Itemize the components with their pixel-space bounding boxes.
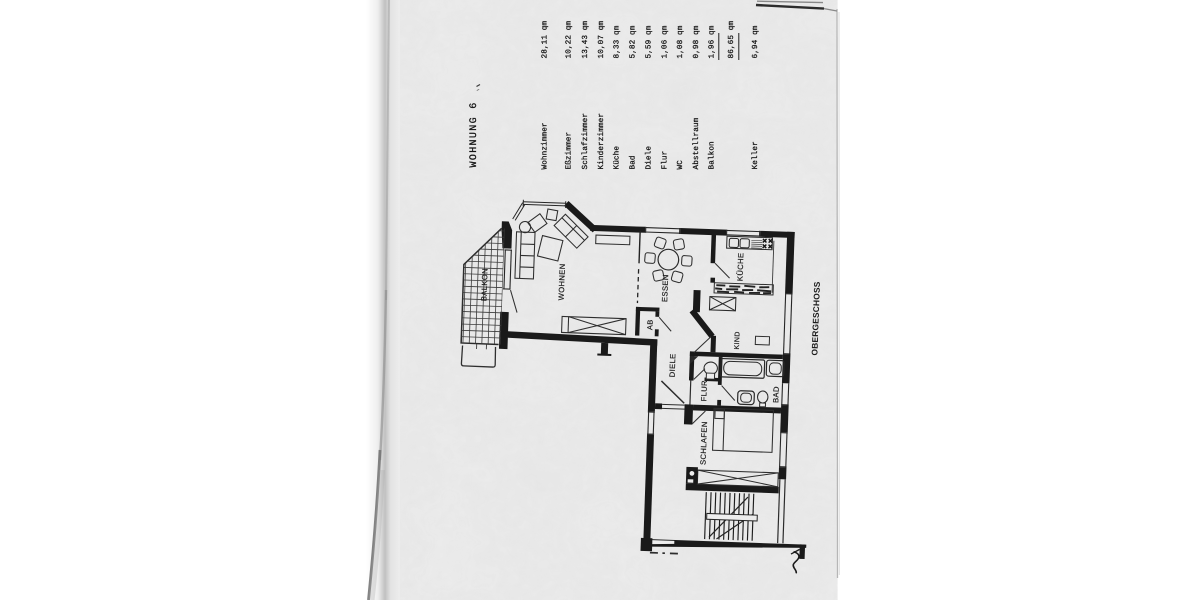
svg-text:Balkon: Balkon (708, 141, 717, 169)
svg-text:BALKON: BALKON (479, 268, 489, 302)
svg-text:5,59 qm: 5,59 qm (645, 25, 654, 58)
svg-text:AB: AB (645, 319, 654, 330)
svg-text:Bad: Bad (628, 155, 637, 169)
svg-text:1,96 qm: 1,96 qm (708, 25, 717, 58)
svg-text:WOHNEN: WOHNEN (557, 263, 567, 300)
svg-text:10,22 qm: 10,22 qm (564, 21, 573, 59)
svg-text:5,82 qm: 5,82 qm (628, 25, 637, 58)
svg-text:Wohnzimmer: Wohnzimmer (540, 122, 549, 169)
svg-text:SCHLAFEN: SCHLAFEN (699, 421, 710, 465)
svg-text:Flur: Flur (660, 151, 669, 170)
svg-text:WOHNUNG 6: WOHNUNG 6 (469, 101, 480, 167)
svg-text:BAD: BAD (771, 386, 781, 403)
svg-text:Eßzimmer: Eßzimmer (564, 132, 573, 170)
svg-text:Diele: Diele (645, 146, 654, 170)
svg-text:8,33 qm: 8,33 qm (613, 25, 622, 58)
svg-text:KÜCHE: KÜCHE (735, 252, 745, 281)
svg-text:WC: WC (676, 160, 685, 170)
svg-text:1,06 qm: 1,06 qm (660, 25, 669, 58)
svg-text:6,94 qm: 6,94 qm (751, 25, 760, 58)
svg-text:1,08 qm: 1,08 qm (676, 25, 685, 58)
svg-text:Küche: Küche (613, 146, 622, 170)
svg-text:DIELE: DIELE (668, 353, 678, 377)
svg-text:Kinderzimmer: Kinderzimmer (597, 113, 606, 170)
svg-text:13,43 qm: 13,43 qm (581, 21, 590, 59)
svg-text:KIND: KIND (734, 331, 742, 350)
svg-text:86,65 qm: 86,65 qm (727, 21, 736, 59)
svg-text:Schlafzimmer: Schlafzimmer (581, 113, 590, 170)
svg-text:FLUR: FLUR (699, 380, 709, 402)
svg-text:0,98 qm: 0,98 qm (692, 25, 701, 58)
svg-text:Abstellraum: Abstellraum (692, 117, 701, 169)
svg-text:ESSEN: ESSEN (660, 274, 670, 302)
svg-text:10,07 qm: 10,07 qm (597, 21, 606, 59)
svg-text:28,11 qm: 28,11 qm (540, 21, 549, 59)
svg-text:Keller: Keller (751, 141, 760, 169)
